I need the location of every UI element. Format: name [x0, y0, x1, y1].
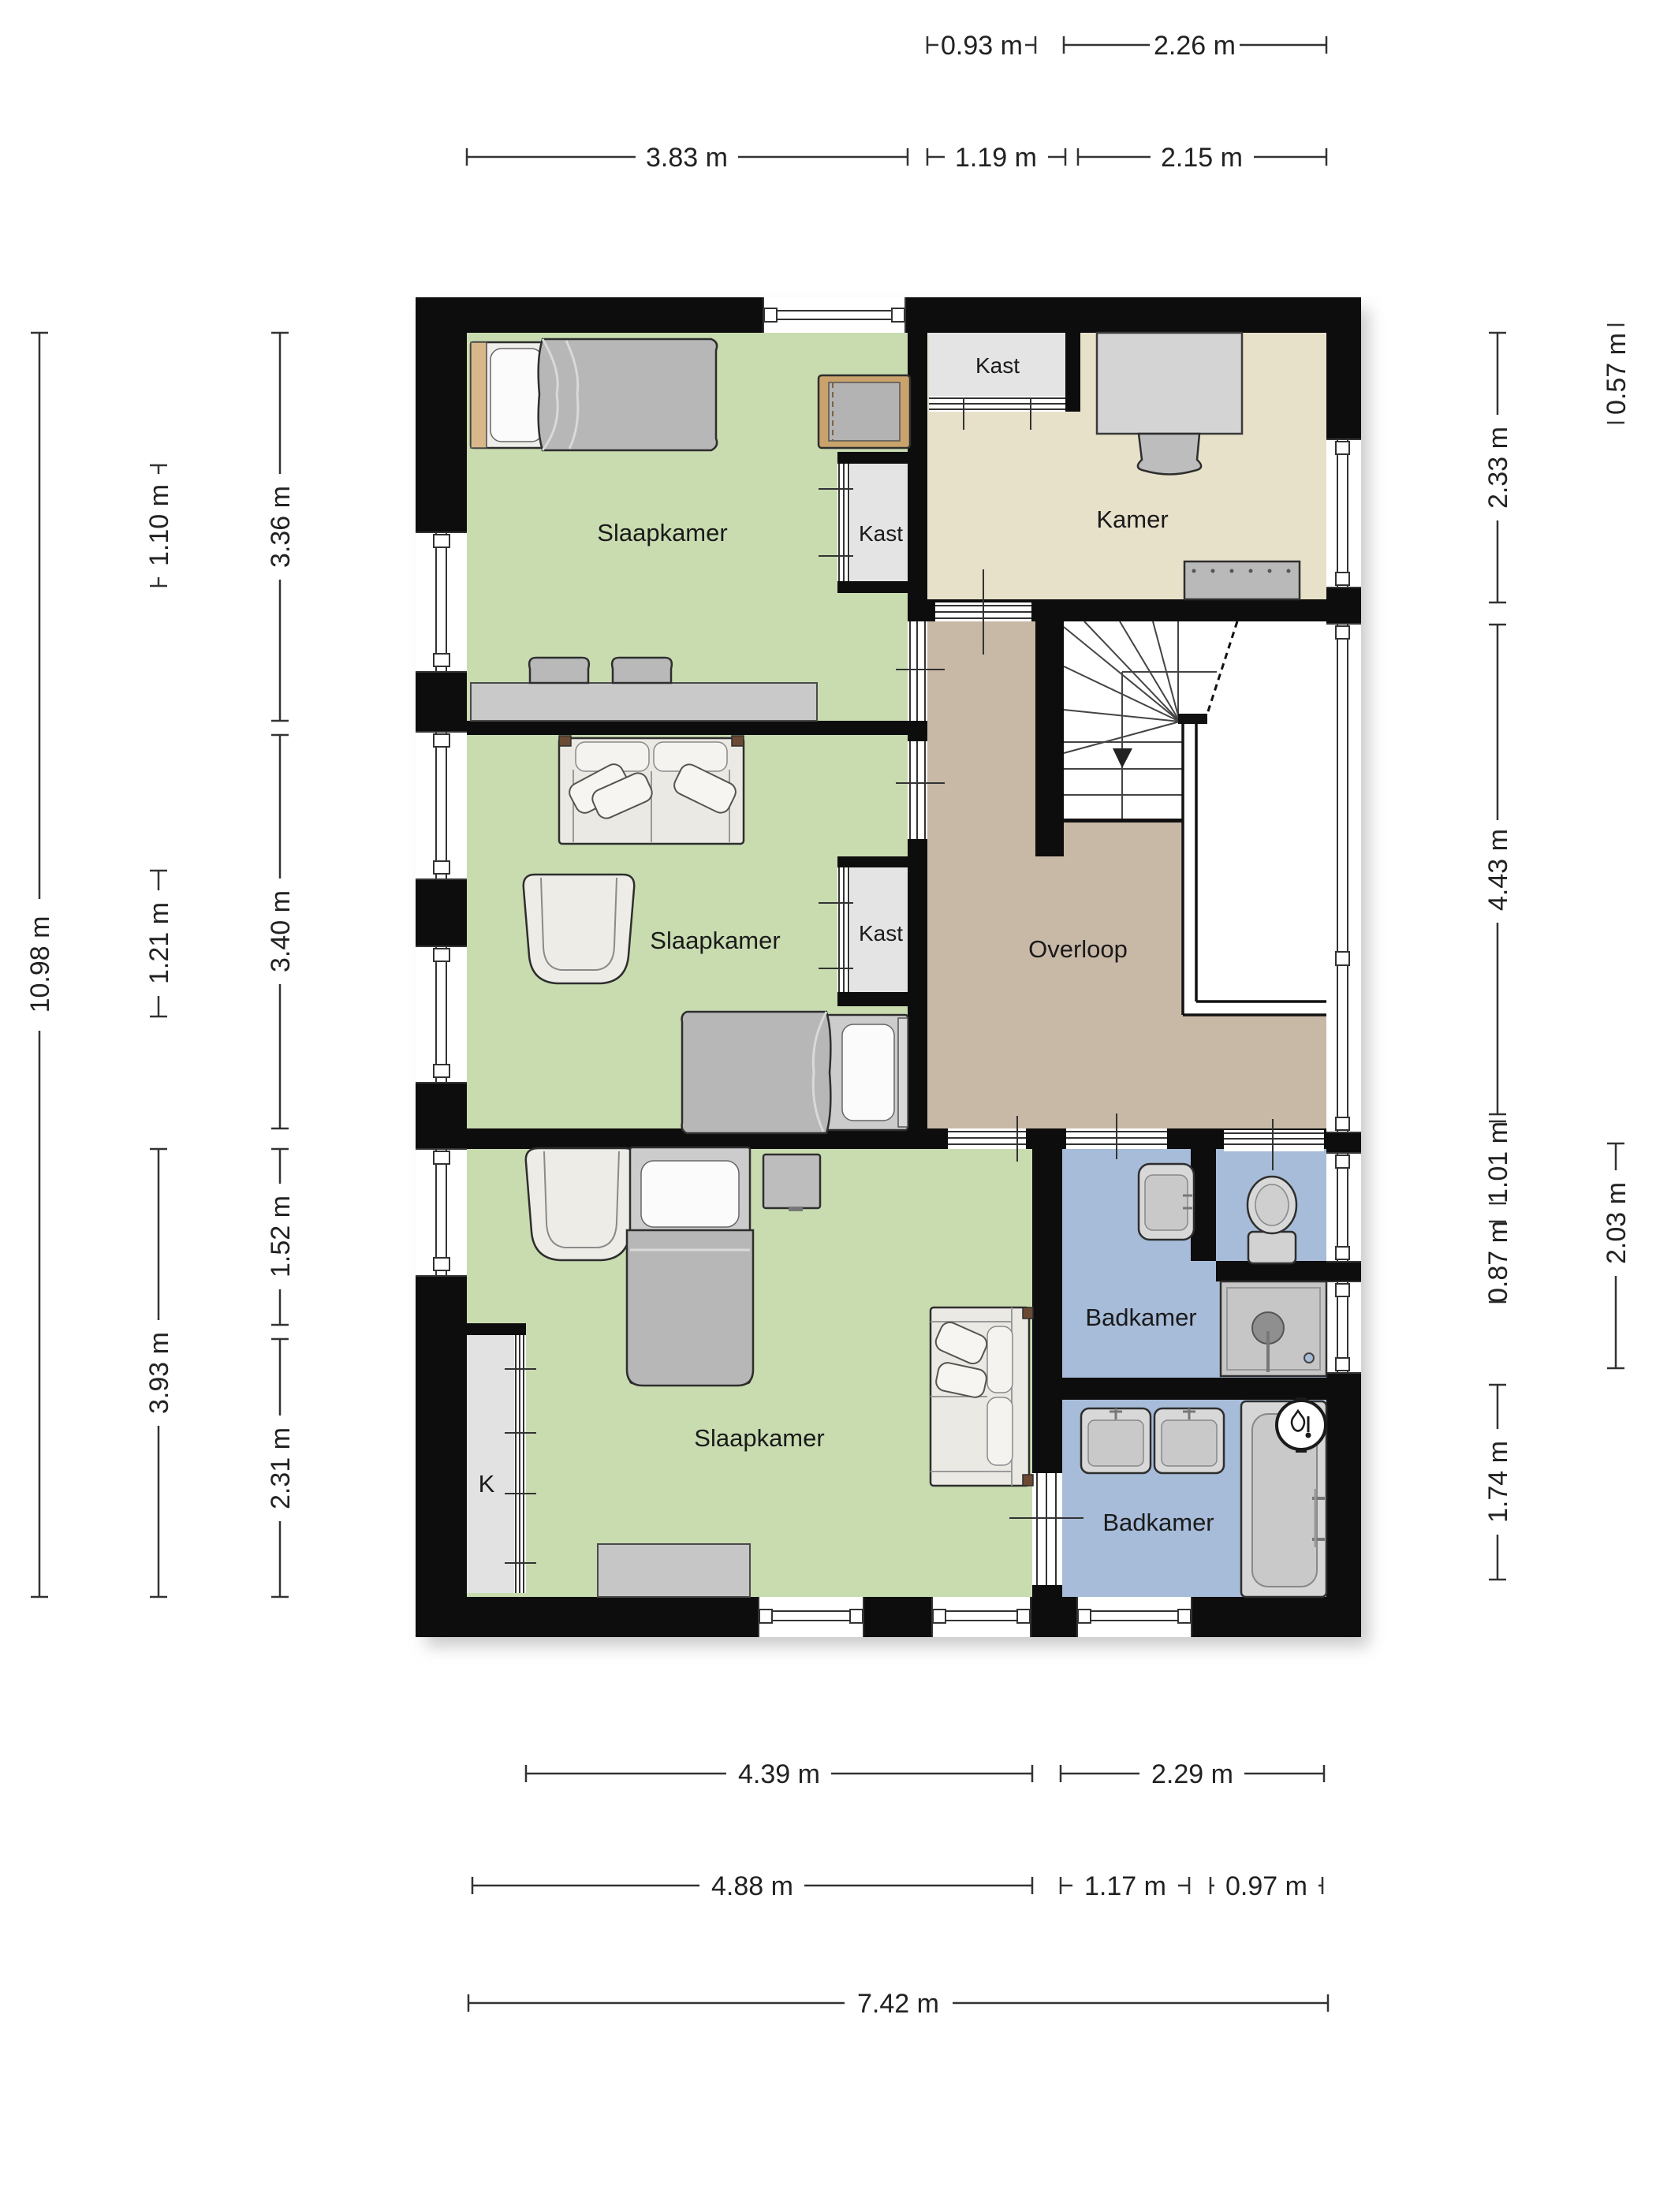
svg-text:3.83 m: 3.83 m: [646, 143, 728, 173]
svg-text:1.01 m: 1.01 m: [1483, 1121, 1513, 1203]
svg-text:1.19 m: 1.19 m: [955, 143, 1037, 173]
svg-text:1.74 m: 1.74 m: [1483, 1441, 1513, 1523]
svg-text:Overloop: Overloop: [1028, 935, 1128, 963]
svg-text:Kamer: Kamer: [1096, 505, 1168, 533]
svg-text:1.10 m: 1.10 m: [144, 484, 174, 566]
svg-text:K: K: [479, 1470, 495, 1498]
svg-text:4.88 m: 4.88 m: [711, 1871, 793, 1901]
svg-text:1.52 m: 1.52 m: [266, 1196, 296, 1278]
svg-text:0.87 m: 0.87 m: [1483, 1221, 1513, 1303]
svg-text:3.93 m: 3.93 m: [144, 1332, 174, 1414]
svg-text:1.17 m: 1.17 m: [1084, 1871, 1166, 1901]
svg-text:3.40 m: 3.40 m: [266, 890, 296, 972]
svg-text:Kast: Kast: [859, 921, 903, 946]
svg-text:4.43 m: 4.43 m: [1483, 829, 1513, 911]
svg-text:10.98 m: 10.98 m: [25, 916, 55, 1013]
svg-text:2.03 m: 2.03 m: [1602, 1182, 1632, 1264]
svg-text:2.29 m: 2.29 m: [1151, 1759, 1233, 1789]
svg-text:2.31 m: 2.31 m: [266, 1427, 296, 1509]
svg-text:Kast: Kast: [859, 521, 903, 546]
svg-text:0.93 m: 0.93 m: [941, 31, 1023, 61]
svg-text:Kast: Kast: [975, 353, 1020, 378]
svg-text:7.42 m: 7.42 m: [857, 1989, 939, 2019]
svg-text:Badkamer: Badkamer: [1102, 1509, 1214, 1536]
svg-text:1.21 m: 1.21 m: [144, 902, 174, 984]
svg-text:Slaapkamer: Slaapkamer: [597, 519, 727, 546]
svg-text:Slaapkamer: Slaapkamer: [694, 1424, 824, 1452]
svg-text:0.57 m: 0.57 m: [1602, 333, 1632, 415]
svg-text:2.33 m: 2.33 m: [1483, 427, 1513, 509]
svg-text:4.39 m: 4.39 m: [738, 1759, 820, 1789]
svg-text:2.15 m: 2.15 m: [1161, 143, 1243, 173]
svg-text:Slaapkamer: Slaapkamer: [650, 927, 780, 954]
svg-text:0.97 m: 0.97 m: [1225, 1871, 1307, 1901]
svg-text:Badkamer: Badkamer: [1085, 1304, 1196, 1331]
svg-text:2.26 m: 2.26 m: [1154, 31, 1236, 61]
svg-text:3.36 m: 3.36 m: [266, 486, 296, 568]
